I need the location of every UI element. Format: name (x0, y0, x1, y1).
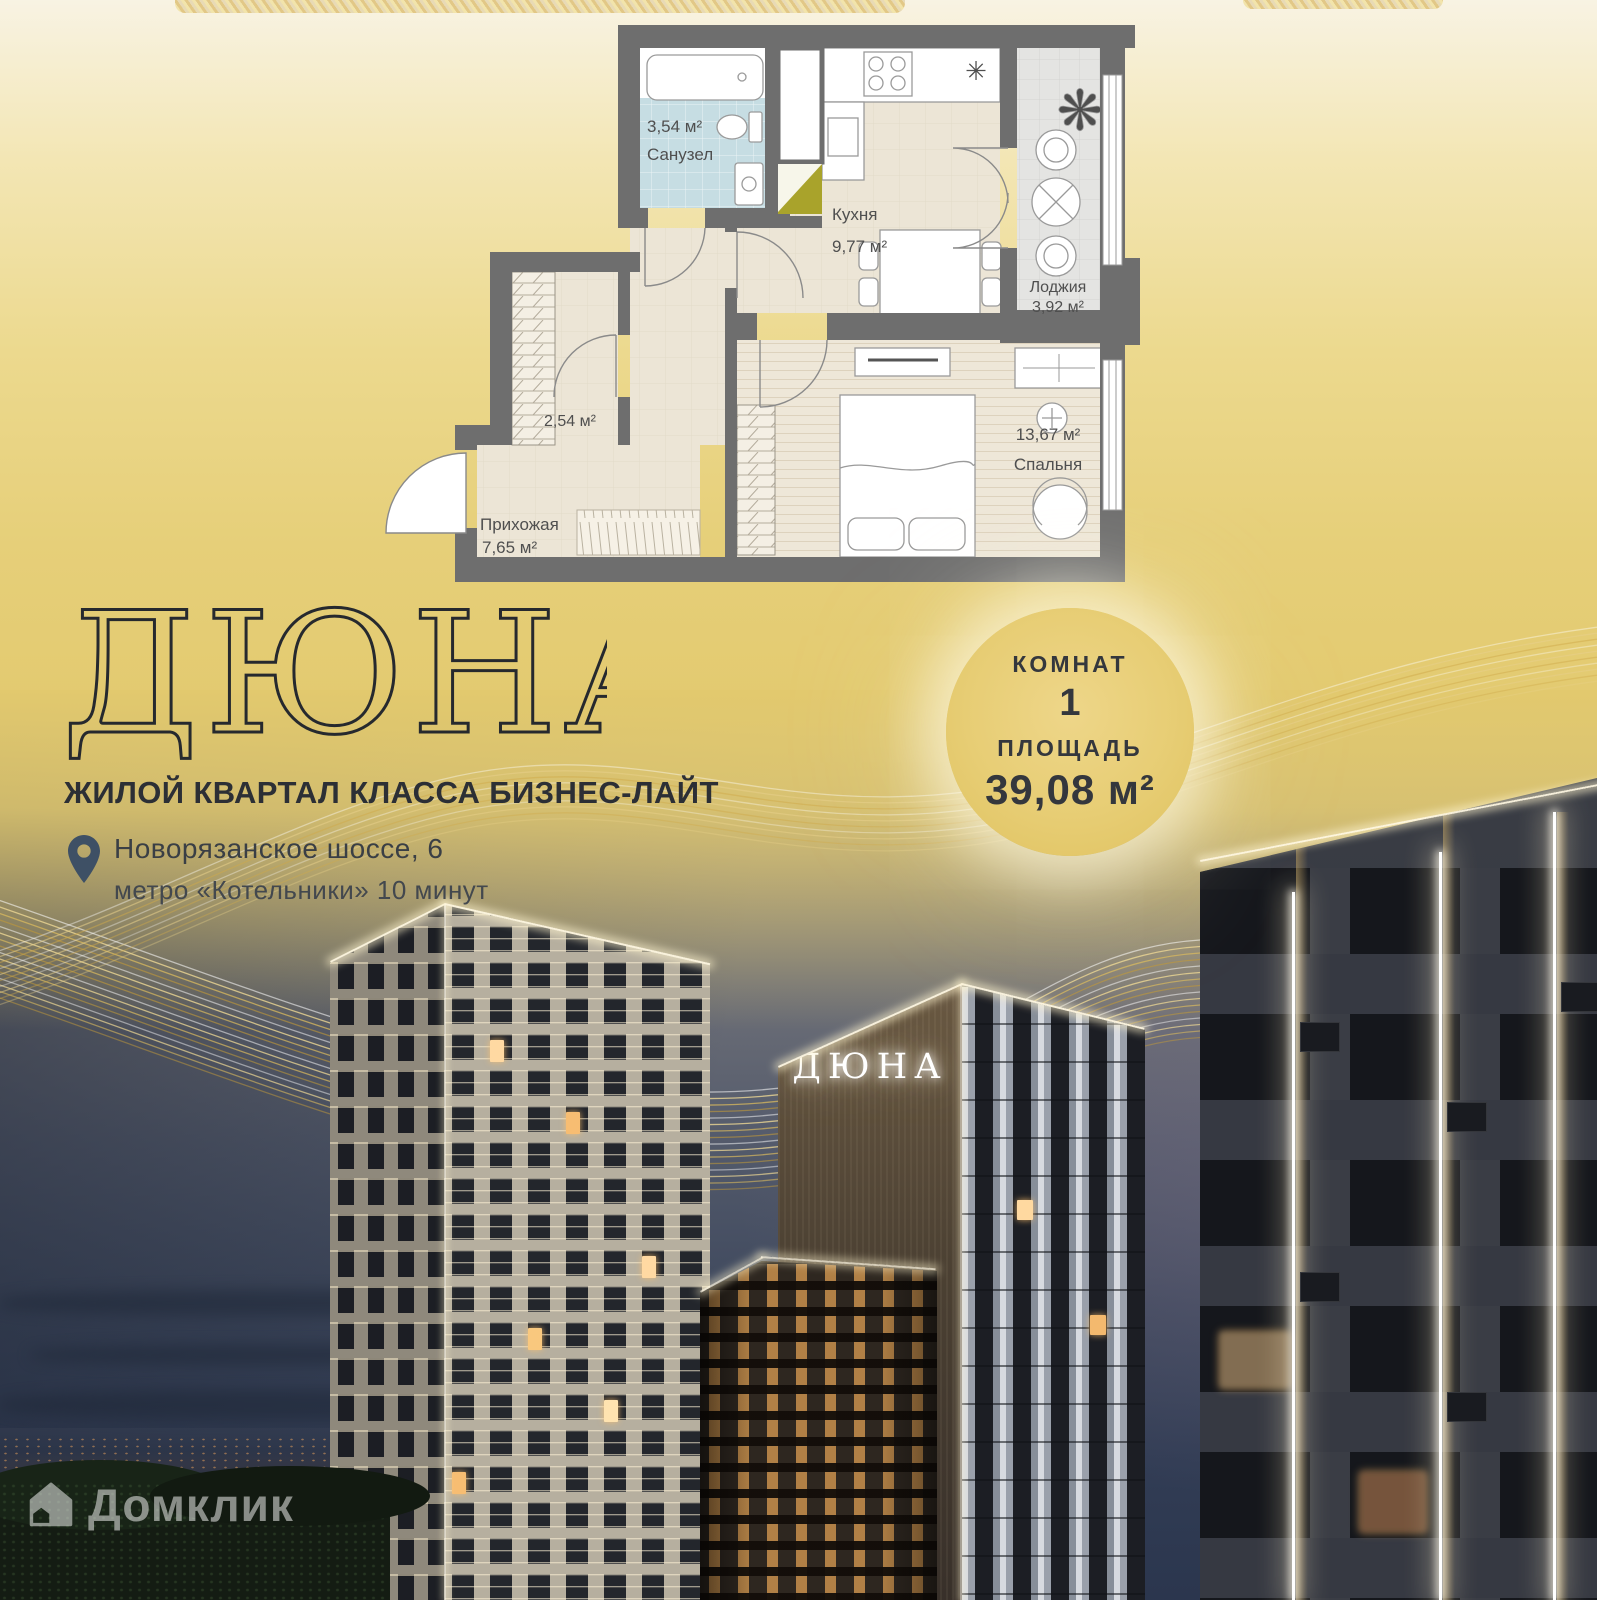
bath-area: 3,54 м² (647, 117, 702, 136)
corner-glow-edge (960, 985, 962, 1600)
tower-left-front-face (445, 890, 710, 1600)
bedroom-name: Спальня (1014, 455, 1082, 474)
loggia-area: 3,92 м² (1032, 299, 1085, 316)
top-ribbon-left (175, 0, 905, 13)
kitchen-name: Кухня (832, 205, 878, 224)
stats-badge: КОМНАТ 1 ПЛОЩАДЬ 39,08 м² (946, 608, 1194, 856)
poster: ДЮНА (0, 0, 1597, 1600)
loggia-chair (1036, 236, 1076, 276)
top-ribbon-right (1243, 0, 1443, 9)
tower-duna-wave-face (962, 985, 1145, 1600)
tower-right (1200, 772, 1597, 1600)
pillow (848, 518, 904, 550)
utility-shaft (778, 48, 822, 162)
bath-sink (735, 163, 763, 205)
watermark: Домклик (28, 1478, 294, 1532)
wardrobe-area: 2,54 м² (544, 413, 597, 430)
watermark-text: Домклик (88, 1478, 294, 1532)
hall-rug (577, 510, 700, 555)
hall-name: Прихожая (480, 515, 559, 534)
domclick-house-icon (28, 1482, 74, 1528)
toilet-tank (749, 112, 762, 142)
location-block: Новорязанское шоссе, 6 метро «Котельники… (62, 833, 719, 906)
loggia-plant-icon: ❋ (1057, 79, 1104, 142)
wall-segment (778, 216, 822, 228)
hall-area: 7,65 м² (482, 538, 537, 557)
address-line: Новорязанское шоссе, 6 (114, 833, 719, 865)
tower-bronze (700, 1255, 937, 1600)
badge-area-label: ПЛОЩАДЬ (997, 735, 1142, 762)
bath-name: Санузел (647, 145, 713, 164)
chair (982, 278, 1001, 306)
loggia-name: Лоджия (1030, 279, 1087, 296)
chair (859, 278, 878, 306)
badge-area-value: 39,08 м² (985, 766, 1155, 814)
corner-glow-edge (444, 905, 446, 1600)
entry-door (386, 453, 466, 533)
logo-text: ДЮНА (62, 580, 607, 765)
kitchen-area: 9,77 м² (832, 237, 887, 256)
pillow (909, 518, 965, 550)
armchair (1033, 485, 1087, 539)
building-sign: ДЮНА (792, 1047, 948, 1087)
location-pin-icon (68, 835, 100, 883)
brand-block: ДЮНА ЖИЛОЙ КВАРТАЛ КЛАССА БИЗНЕС-ЛАЙТ Но… (62, 580, 719, 906)
badge-rooms-label: КОМНАТ (1012, 651, 1127, 678)
toilet-bowl (717, 115, 747, 139)
floor-plan: ❋ ✳ (380, 20, 1160, 582)
bedroom-area: 13,67 м² (1016, 425, 1081, 444)
kitchen-sink-icon: ✳ (965, 56, 987, 86)
brand-subtitle: ЖИЛОЙ КВАРТАЛ КЛАССА БИЗНЕС-ЛАЙТ (64, 775, 719, 811)
logo: ДЮНА (62, 580, 607, 765)
kitchen-table (880, 230, 980, 315)
chair (982, 242, 1001, 270)
badge-rooms-value: 1 (1059, 682, 1080, 725)
tv-console (855, 348, 950, 376)
bedroom-wardrobe (737, 405, 775, 555)
metro-line: метро «Котельники» 10 минут (114, 875, 719, 906)
